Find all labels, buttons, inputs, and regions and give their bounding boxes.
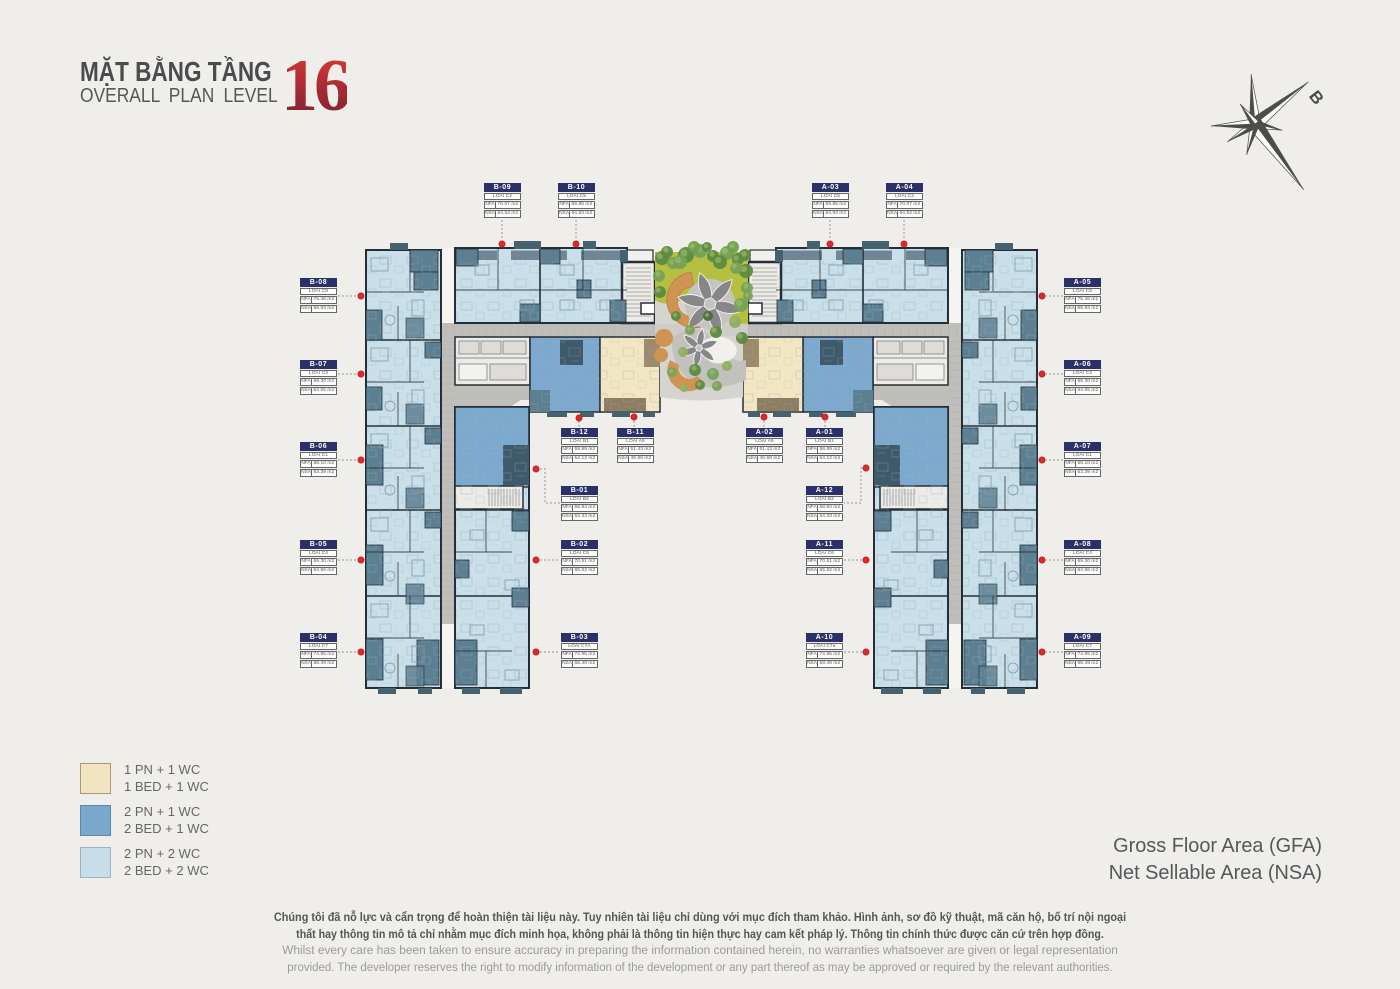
svg-text:B: B bbox=[1305, 87, 1328, 108]
